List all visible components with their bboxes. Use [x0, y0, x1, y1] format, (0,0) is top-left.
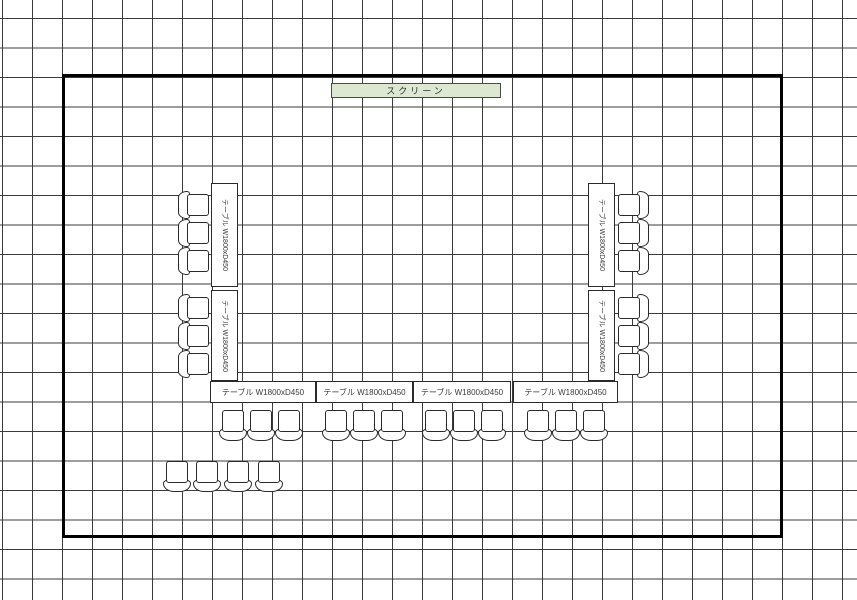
chair [178, 350, 209, 378]
chair [178, 322, 209, 350]
table-left-upper: テーブル W1800xD450 [211, 183, 238, 287]
floor-plan-canvas: スクリーン テーブル W1800xD450 テーブル W1800xD450 テー… [0, 0, 857, 600]
chair [178, 247, 209, 275]
table-label: テーブル W1800xD450 [323, 387, 405, 398]
chair [178, 191, 209, 219]
chair [322, 410, 350, 441]
table-right-upper: テーブル W1800xD450 [588, 183, 615, 287]
chair [247, 410, 275, 441]
chair [618, 219, 649, 247]
table-bottom-4: テーブル W1800xD450 [513, 381, 618, 403]
chair [450, 410, 478, 441]
chair [224, 461, 252, 492]
chair [178, 294, 209, 322]
screen-label: スクリーン [386, 84, 446, 97]
table-right-lower: テーブル W1800xD450 [588, 290, 615, 381]
chair [422, 410, 450, 441]
chair [478, 410, 506, 441]
chair [618, 322, 649, 350]
chair [193, 461, 221, 492]
table-label: テーブル W1800xD450 [597, 199, 607, 271]
table-label: テーブル W1800xD450 [220, 199, 230, 271]
chair [255, 461, 283, 492]
chair [618, 247, 649, 275]
chair [378, 410, 406, 441]
table-left-lower: テーブル W1800xD450 [211, 290, 238, 381]
table-bottom-2: テーブル W1800xD450 [316, 381, 413, 403]
chair [618, 191, 649, 219]
chair [618, 350, 649, 378]
chair [524, 410, 552, 441]
chair [580, 410, 608, 441]
table-bottom-3: テーブル W1800xD450 [413, 381, 511, 403]
table-bottom-1: テーブル W1800xD450 [210, 381, 316, 403]
table-label: テーブル W1800xD450 [222, 387, 304, 398]
chair [552, 410, 580, 441]
chair [219, 410, 247, 441]
table-label: テーブル W1800xD450 [597, 300, 607, 372]
chair [178, 219, 209, 247]
screen-box: スクリーン [331, 83, 501, 98]
table-label: テーブル W1800xD450 [220, 300, 230, 372]
chair [618, 294, 649, 322]
chair [350, 410, 378, 441]
table-label: テーブル W1800xD450 [524, 387, 606, 398]
chair [275, 410, 303, 441]
chair [163, 461, 191, 492]
table-label: テーブル W1800xD450 [421, 387, 503, 398]
